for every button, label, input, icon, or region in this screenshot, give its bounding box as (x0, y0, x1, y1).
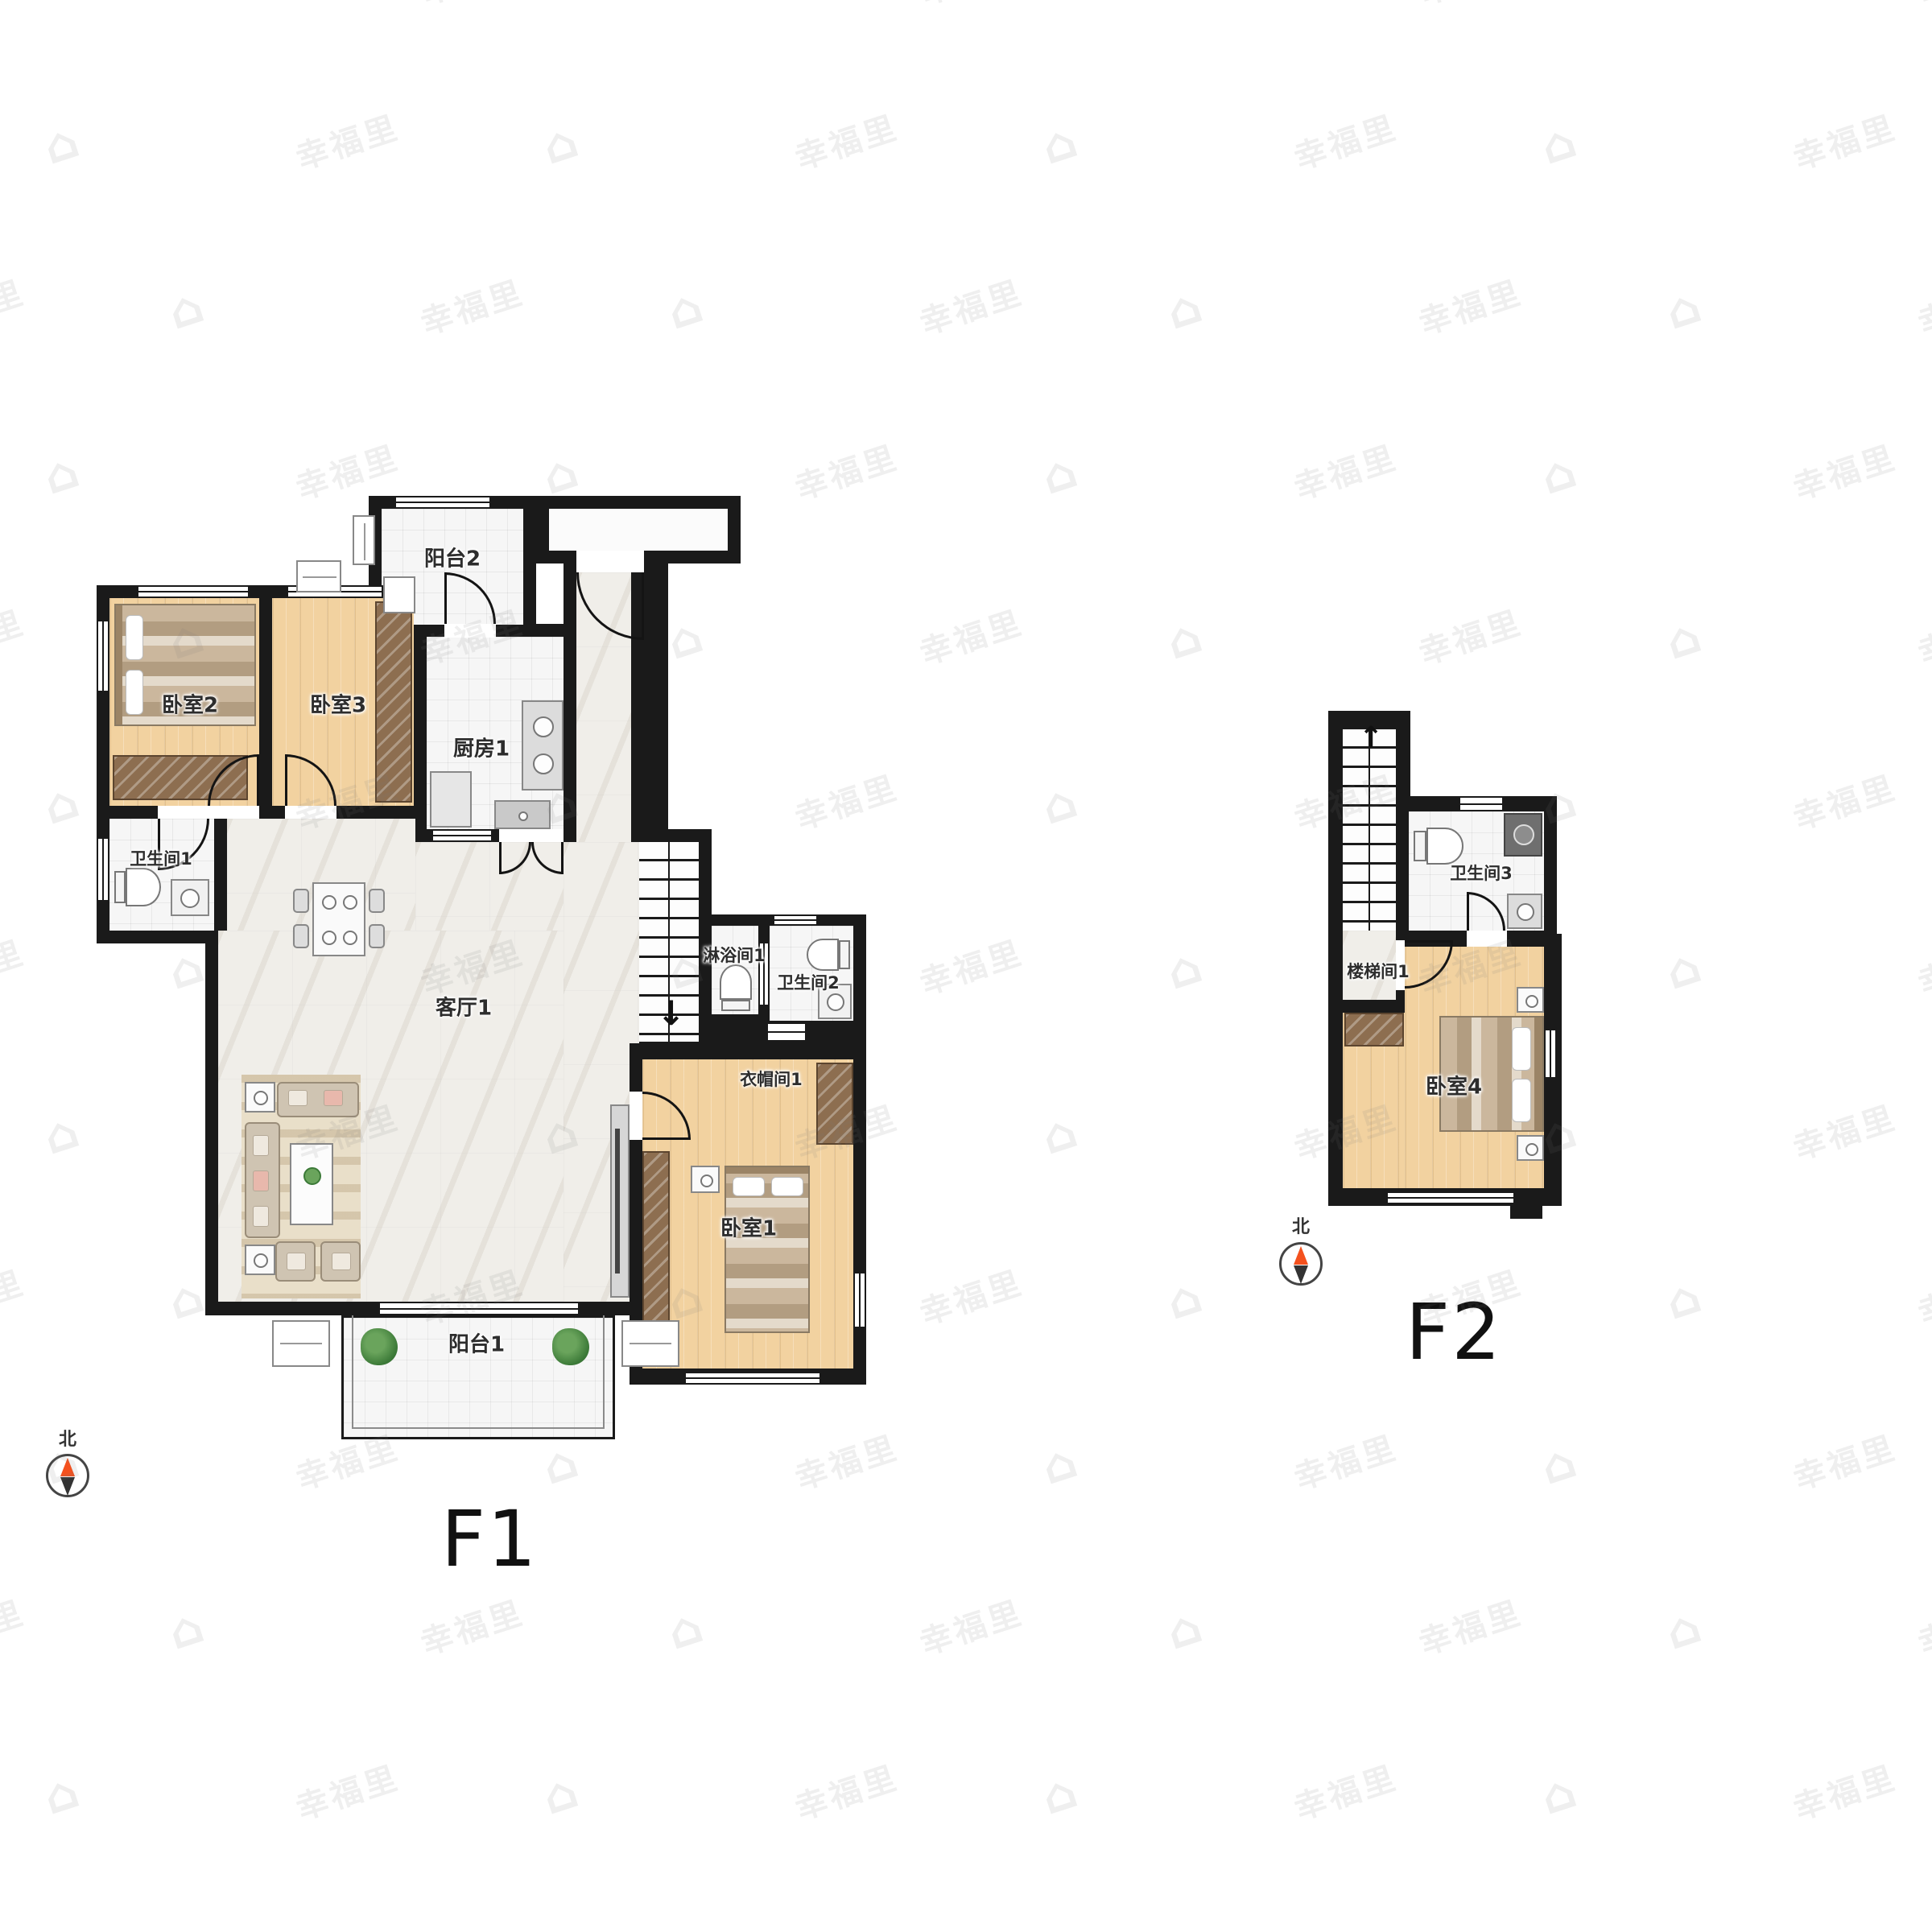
window (684, 1372, 821, 1385)
door-gap (630, 1092, 642, 1140)
sofa-pillow (287, 1253, 306, 1270)
ac-line (303, 576, 336, 578)
bed-pillow (1512, 1027, 1531, 1071)
watermark-house-icon: ⌂ (1659, 608, 1708, 671)
ac-line (630, 1343, 671, 1344)
watermark-house-icon: ⌂ (1160, 608, 1209, 671)
watermark-text: 幸福里 (1911, 927, 1932, 1004)
door-gap (499, 829, 563, 842)
wall-segment (1510, 1190, 1542, 1219)
watermark-text: 幸福里 (1287, 1422, 1402, 1499)
sofa (277, 1082, 359, 1117)
nightstand (1517, 1135, 1544, 1161)
watermark-text: 幸福里 (1287, 431, 1402, 509)
room-label-living1: 客厅1 (436, 992, 492, 1022)
ac-line (280, 1343, 322, 1344)
room-label-cloakroom1: 衣帽间1 (740, 1067, 803, 1091)
watermark-house-icon: ⌂ (1035, 1433, 1084, 1496)
window (97, 620, 109, 692)
watermark-text: 幸福里 (289, 101, 404, 179)
sofa-pillow (253, 1170, 269, 1191)
floor-label-f2: F2 (1406, 1287, 1502, 1377)
stove (522, 700, 563, 791)
wardrobe (642, 1151, 670, 1330)
toilet-bowl (1426, 828, 1463, 865)
room-label-balcony2: 阳台2 (424, 543, 481, 572)
plate-icon (322, 895, 336, 910)
watermark-house-icon: ⌂ (1160, 0, 1209, 10)
watermark-text: 幸福里 (788, 431, 903, 509)
watermark-text: 幸福里 (1911, 266, 1932, 344)
door-gap (1467, 931, 1507, 947)
bed-headboard (116, 605, 122, 724)
watermark-text: 幸福里 (0, 1587, 31, 1664)
toilet-tank (114, 871, 126, 903)
watermark-house-icon: ⌂ (536, 1433, 585, 1496)
room-label-bedroom3: 卧室3 (310, 689, 366, 719)
watermark-house-icon: ⌂ (661, 0, 710, 10)
watermark-house-icon: ⌂ (162, 0, 211, 10)
watermark-text: 幸福里 (414, 266, 529, 344)
bed-pillow (1512, 1079, 1531, 1122)
sofa-pillow (324, 1090, 343, 1106)
watermark-house-icon: ⌂ (162, 1598, 211, 1661)
watermark-text: 幸福里 (1786, 1752, 1901, 1829)
watermark-text: 幸福里 (788, 1752, 903, 1829)
watermark-house-icon: ⌂ (661, 1598, 710, 1661)
toilet-bowl (126, 868, 161, 906)
watermark-text: 幸福里 (1412, 0, 1527, 14)
bathroom-sink (171, 879, 209, 916)
watermark-text: 幸福里 (1412, 1587, 1527, 1664)
window (431, 829, 493, 842)
watermark-text: 幸福里 (1786, 431, 1901, 509)
room-label-bedroom1: 卧室1 (720, 1212, 777, 1242)
door-gap (285, 806, 336, 819)
watermark-text: 幸福里 (1911, 1587, 1932, 1664)
watermark-house-icon: ⌂ (1534, 1763, 1583, 1826)
watermark-house-icon: ⌂ (1659, 1598, 1708, 1661)
plant-icon (361, 1328, 398, 1365)
decor-icon (1525, 995, 1538, 1008)
tv-screen (615, 1129, 620, 1274)
watermark-house-icon: ⌂ (37, 1103, 86, 1166)
watermark-house-icon: ⌂ (162, 278, 211, 341)
nightstand (1517, 987, 1544, 1013)
window (853, 1272, 866, 1328)
bathroom-sink (1507, 894, 1542, 929)
watermark-house-icon: ⌂ (1035, 773, 1084, 836)
watermark-text: 幸福里 (0, 927, 31, 1004)
toilet-tank (721, 1000, 750, 1011)
plate-icon (322, 931, 336, 945)
dining-chair (369, 924, 385, 948)
plate-icon (343, 895, 357, 910)
watermark-text: 幸福里 (1412, 266, 1527, 344)
bed-headboard (1534, 1018, 1542, 1130)
watermark-house-icon: ⌂ (1160, 278, 1209, 341)
plant-icon (552, 1328, 589, 1365)
watermark-text: 幸福里 (1786, 762, 1901, 839)
wardrobe (816, 1063, 853, 1145)
decor-icon (1525, 1143, 1538, 1156)
floor-label-f1: F1 (441, 1494, 538, 1584)
side-table (245, 1245, 275, 1275)
watermark-text: 幸福里 (289, 1752, 404, 1829)
dining-chair (293, 889, 309, 913)
watermark-text: 幸福里 (0, 597, 31, 674)
watermark-house-icon: ⌂ (536, 1763, 585, 1826)
watermark-text: 幸福里 (1911, 597, 1932, 674)
wardrobe (375, 601, 412, 803)
window (1544, 1029, 1557, 1079)
watermark-text: 幸福里 (414, 0, 529, 14)
watermark-text: 幸福里 (913, 1587, 1028, 1664)
sofa-pillow (332, 1253, 351, 1270)
bed-headboard (726, 1167, 808, 1174)
watermark-text: 幸福里 (913, 1257, 1028, 1334)
sofa-pillow (253, 1206, 269, 1227)
window (1386, 1191, 1515, 1204)
fridge (430, 771, 472, 828)
toilet-icon (114, 868, 161, 906)
plate-icon (343, 931, 357, 945)
watermark-text: 幸福里 (1786, 1422, 1901, 1499)
compass-icon (1279, 1242, 1323, 1286)
toilet-icon (1414, 828, 1463, 865)
watermark-house-icon: ⌂ (1534, 443, 1583, 506)
watermark-house-icon: ⌂ (37, 773, 86, 836)
toilet-bowl (807, 939, 839, 971)
room-label-stairwell1: 楼梯间1 (1347, 959, 1410, 983)
room-label-bathroom2: 卫生间2 (777, 970, 840, 994)
door-gap (158, 806, 209, 819)
burner-icon (533, 716, 554, 737)
watermark-text: 幸福里 (1287, 1752, 1402, 1829)
sofa (245, 1122, 280, 1238)
watermark-text: 幸福里 (913, 597, 1028, 674)
wardrobe (1344, 1013, 1404, 1046)
room-label-bathroom1: 卫生间1 (130, 846, 192, 870)
watermark-text: 幸福里 (1911, 0, 1932, 14)
bed-pillow (771, 1177, 803, 1196)
plant-icon (303, 1167, 321, 1185)
watermark-house-icon: ⌂ (1160, 1598, 1209, 1661)
ac-unit (272, 1320, 330, 1367)
compass-south-needle (60, 1477, 75, 1496)
balcony-cabinet (383, 576, 415, 613)
watermark-text: 幸福里 (1911, 1257, 1932, 1334)
sink-basin-icon (180, 889, 200, 908)
ac-line (364, 523, 365, 560)
watermark-house-icon: ⌂ (1035, 113, 1084, 175)
ac-unit (621, 1320, 679, 1367)
watermark-house-icon: ⌂ (37, 1763, 86, 1826)
window (137, 585, 250, 598)
sofa-pillow (253, 1135, 269, 1156)
north-label-f1: 北 (59, 1425, 76, 1451)
decor-icon (700, 1174, 713, 1187)
nightstand (691, 1166, 720, 1193)
washing-machine (1504, 813, 1542, 857)
armchair (275, 1241, 316, 1282)
window (97, 837, 109, 902)
watermark-text: 幸福里 (788, 762, 903, 839)
window (773, 914, 818, 926)
toilet-icon (720, 964, 752, 1011)
watermark-house-icon: ⌂ (162, 1268, 211, 1331)
watermark-house-icon: ⌂ (1160, 938, 1209, 1001)
armchair (320, 1241, 361, 1282)
ac-unit (296, 560, 341, 592)
compass-icon (46, 1454, 89, 1497)
north-label-f2: 北 (1292, 1212, 1310, 1238)
toilet-tank (1414, 831, 1426, 861)
wall-segment (630, 1140, 642, 1302)
coffee-table (290, 1143, 333, 1225)
bed-pillow (126, 615, 143, 660)
watermark-text: 幸福里 (913, 266, 1028, 344)
watermark-house-icon: ⌂ (1534, 113, 1583, 175)
watermark-house-icon: ⌂ (1035, 1763, 1084, 1826)
watermark-text: 幸福里 (913, 0, 1028, 14)
dining-chair (369, 889, 385, 913)
bed-pillow (733, 1177, 765, 1196)
compass-north-needle (1294, 1246, 1308, 1265)
watermark-house-icon: ⌂ (1035, 443, 1084, 506)
door-gap (576, 551, 644, 572)
window (1459, 796, 1504, 811)
watermark-text: 幸福里 (1412, 597, 1527, 674)
watermark-text: 幸福里 (1786, 101, 1901, 179)
bathroom2-door (766, 1022, 807, 1042)
toilet-tank (839, 940, 850, 969)
bed-pillow (126, 670, 143, 715)
floor-plan-canvas: ↓ (0, 0, 1932, 1932)
watermark-text: 幸福里 (0, 0, 31, 14)
stair-rail (1368, 729, 1370, 931)
watermark-house-icon: ⌂ (1659, 938, 1708, 1001)
toilet-icon (807, 939, 850, 971)
toilet-bowl (720, 964, 752, 1000)
room-label-bedroom2: 卧室2 (162, 689, 218, 719)
compass-north-needle (60, 1458, 75, 1476)
door-gap (208, 806, 259, 819)
watermark-house-icon: ⌂ (1534, 1433, 1583, 1496)
balcony-sliding-door (378, 1302, 580, 1315)
ac-unit (353, 515, 375, 565)
watermark-house-icon: ⌂ (661, 278, 710, 341)
watermark-text: 幸福里 (1287, 101, 1402, 179)
watermark-house-icon: ⌂ (1659, 0, 1708, 10)
watermark-house-icon: ⌂ (1659, 278, 1708, 341)
room-label-shower1: 淋浴间1 (703, 943, 766, 967)
watermark-text: 幸福里 (788, 1422, 903, 1499)
watermark-house-icon: ⌂ (1160, 1268, 1209, 1331)
dining-table (312, 882, 365, 956)
burner-icon (533, 753, 554, 774)
sink-drain-icon (518, 811, 528, 821)
washer-drum-icon (1513, 824, 1534, 845)
watermark-text: 幸福里 (788, 101, 903, 179)
window (394, 496, 491, 509)
dining-chair (293, 924, 309, 948)
watermark-text: 幸福里 (0, 1257, 31, 1334)
decor-icon (254, 1091, 268, 1105)
room-label-bedroom4: 卧室4 (1426, 1071, 1482, 1100)
sink-basin-icon (1517, 903, 1534, 921)
watermark-text: 幸福里 (1786, 1092, 1901, 1169)
kitchen-sink (494, 800, 551, 829)
door-gap (444, 624, 496, 638)
watermark-house-icon: ⌂ (1035, 1103, 1084, 1166)
stair-down-arrow-icon: ↓ (657, 993, 685, 1033)
watermark-house-icon: ⌂ (162, 938, 211, 1001)
watermark-house-icon: ⌂ (536, 113, 585, 175)
decor-icon (254, 1253, 268, 1268)
watermark-house-icon: ⌂ (37, 113, 86, 175)
compass-south-needle (1294, 1265, 1308, 1284)
equipment-platform (549, 509, 728, 551)
watermark-house-icon: ⌂ (1659, 1268, 1708, 1331)
sink-basin-icon (827, 993, 844, 1011)
staircase-f2 (1343, 729, 1396, 931)
stair-up-arrow-icon: ↑ (1359, 721, 1383, 754)
watermark-text: 幸福里 (414, 1587, 529, 1664)
watermark-text: 幸福里 (0, 266, 31, 344)
side-table (245, 1082, 275, 1113)
room-label-bathroom3: 卫生间3 (1450, 861, 1513, 885)
room-label-kitchen1: 厨房1 (453, 733, 510, 762)
sofa-pillow (288, 1090, 308, 1106)
watermark-text: 幸福里 (913, 927, 1028, 1004)
wall-segment (630, 1043, 642, 1092)
watermark-house-icon: ⌂ (37, 443, 86, 506)
room-label-balcony1: 阳台1 (448, 1328, 505, 1358)
tv-cabinet (610, 1104, 630, 1298)
bed (724, 1166, 810, 1333)
